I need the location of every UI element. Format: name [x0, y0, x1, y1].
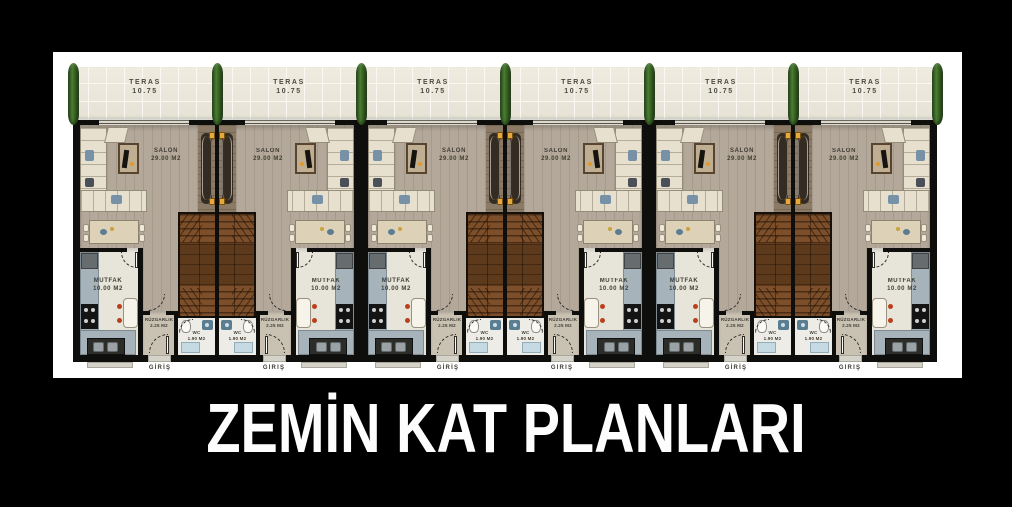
entrance-label: GİRİŞ: [249, 365, 299, 373]
sink-counter: [885, 338, 923, 355]
kitchen-room-name: MUTFAK: [300, 278, 352, 286]
entrance-door-leaf: [265, 336, 268, 354]
floor-plan-sheet: TERAS 10.75: [0, 0, 1012, 507]
sink-counter: [597, 338, 635, 355]
stair-landing: [468, 244, 503, 286]
staircase: [795, 212, 832, 318]
wc-wall: [507, 316, 546, 318]
kitchen-wall: [656, 248, 703, 252]
entrance-label: GİRİŞ: [711, 365, 761, 373]
unit-graphics: TERAS 10.75: [505, 52, 649, 378]
dining-chair: [633, 234, 639, 242]
salon-room-name: SALON: [523, 148, 589, 156]
entrance-label: GİRİŞ: [135, 365, 185, 373]
wc-room-area: 1.90 M2: [219, 336, 256, 342]
wc-wall: [752, 316, 791, 318]
stair-landing: [756, 244, 791, 286]
entrance-door-leaf: [742, 336, 745, 354]
entrance-name: GİRİŞ: [537, 365, 587, 373]
sofa-pillow: [111, 195, 122, 204]
vestibule-room-area: 2.25 M2: [257, 323, 293, 329]
sofa-pillow: [600, 195, 611, 204]
kitchen-room-name: MUTFAK: [588, 278, 640, 286]
dining-table: [665, 220, 715, 244]
wc-wall: [795, 316, 834, 318]
salon-room-area: 29.00 M2: [421, 156, 487, 164]
dining-chair: [427, 234, 433, 242]
vestibule-label: RÜZGARLIK 2.25 M2: [717, 317, 753, 328]
salon-room-area: 29.00 M2: [811, 156, 877, 164]
sink: [669, 342, 680, 352]
dining-chair: [371, 234, 377, 242]
salon-room-name: SALON: [709, 148, 775, 156]
sink: [906, 342, 917, 352]
newel-post: [209, 198, 215, 205]
entrance-name: GİRİŞ: [249, 365, 299, 373]
vestibule-room-name: RÜZGARLIK: [141, 317, 177, 323]
newel-post: [795, 198, 801, 205]
wc-wall: [544, 316, 546, 355]
stove: [912, 304, 929, 329]
dining-chair: [577, 234, 583, 242]
newel-post: [507, 132, 513, 139]
dining-chair: [289, 224, 295, 232]
tv: [698, 150, 705, 169]
vestibule-room-name: RÜZGARLIK: [545, 317, 581, 323]
bottom-wall: [649, 355, 724, 362]
cypress-tree: [644, 63, 655, 125]
fridge: [369, 253, 386, 269]
bottom-wall: [286, 355, 361, 362]
kitchen-chair: [117, 318, 122, 323]
kitchen-chair: [405, 304, 410, 309]
cypress-tree: [500, 63, 511, 125]
wc-wall: [464, 316, 466, 355]
cypress-tree: [212, 63, 223, 125]
sink: [316, 342, 327, 352]
stair-corridor: [198, 125, 215, 212]
sofa-pillow: [312, 195, 323, 204]
kitchen-wall: [368, 248, 415, 252]
bottom-wall: [793, 355, 839, 362]
kitchen-room-name: MUTFAK: [82, 278, 134, 286]
entrance-sill: [839, 355, 862, 362]
sofa-pillow: [661, 178, 670, 187]
vestibule-room-name: RÜZGARLIK: [429, 317, 465, 323]
breakfast-table: [123, 298, 138, 328]
fridge: [657, 253, 674, 269]
entrance-name: GİRİŞ: [423, 365, 473, 373]
sink-counter: [87, 338, 125, 355]
kitchen-chair: [312, 318, 317, 323]
table-decor: [676, 229, 683, 235]
kitchen-chair: [888, 304, 893, 309]
kitchen-chair: [693, 318, 698, 323]
dining-chair: [659, 234, 665, 242]
housing-unit-1: TERAS 10.75: [73, 52, 217, 378]
shower-mat: [522, 342, 541, 353]
vestibule-label: RÜZGARLIK 2.25 M2: [545, 317, 581, 328]
wc-room-area: 1.90 M2: [795, 336, 832, 342]
dining-chair: [289, 234, 295, 242]
plan-paper: TERAS 10.75: [53, 52, 962, 378]
dining-chair: [139, 224, 145, 232]
unit-graphics: TERAS 10.75: [73, 52, 217, 378]
sink: [395, 342, 406, 352]
stair-railing: [490, 136, 500, 200]
sink: [892, 342, 903, 352]
bottom-wall: [747, 355, 793, 362]
dining-chair: [345, 234, 351, 242]
terrace-room-name: TERAS: [505, 79, 649, 88]
stair-landing: [219, 244, 254, 286]
stove: [369, 304, 386, 329]
table-decor: [320, 227, 324, 231]
vestibule-room-name: RÜZGARLIK: [833, 317, 869, 323]
kitchen-room-area: 10.00 M2: [658, 286, 710, 294]
door-leaf: [423, 252, 426, 268]
terrace-room-name: TERAS: [361, 79, 505, 88]
dining-chair: [345, 224, 351, 232]
sofa-corner: [593, 127, 618, 143]
fridge: [624, 253, 641, 269]
entrance-label: GİRİŞ: [537, 365, 587, 373]
staircase: [466, 212, 503, 318]
vestibule-label: RÜZGARLIK 2.25 M2: [429, 317, 465, 328]
salon-label: SALON 29.00 M2: [523, 148, 589, 163]
sink: [618, 342, 629, 352]
outer-wall: [361, 120, 368, 362]
bottom-wall: [361, 355, 436, 362]
dining-chair: [715, 224, 721, 232]
terrace-room-area: 10.75: [793, 88, 937, 97]
newel-post: [219, 132, 225, 139]
table-decor: [100, 229, 107, 235]
fridge: [81, 253, 98, 269]
vestibule-room-area: 2.25 M2: [833, 323, 869, 329]
washbasin: [509, 320, 520, 330]
newel-post: [795, 132, 801, 139]
outer-wall: [930, 120, 937, 362]
kitchen-label: MUTFAK 10.00 M2: [588, 278, 640, 293]
terrace-room-name: TERAS: [217, 79, 361, 88]
dining-table: [377, 220, 427, 244]
staircase: [178, 212, 215, 318]
dining-chair: [865, 224, 871, 232]
vestibule-room-area: 2.25 M2: [429, 323, 465, 329]
kitchen-chair: [693, 304, 698, 309]
shower-mat: [234, 342, 253, 353]
table-decor: [398, 227, 402, 231]
entrance-label: GİRİŞ: [825, 365, 875, 373]
salon-label: SALON 29.00 M2: [709, 148, 775, 163]
winder-treads: [520, 214, 542, 242]
table-decor: [896, 227, 900, 231]
entrance-sill: [551, 355, 574, 362]
vestibule-wall: [431, 311, 438, 315]
salon-label: SALON 29.00 M2: [811, 148, 877, 163]
kitchen-wall: [80, 248, 127, 252]
entrance-sill: [436, 355, 459, 362]
housing-unit-4: TERAS 10.75: [505, 52, 649, 378]
entrance-label: GİRİŞ: [423, 365, 473, 373]
salon-room-name: SALON: [235, 148, 301, 156]
sofa-pillow: [628, 150, 637, 161]
kitchen-chair: [312, 304, 317, 309]
stair-railing: [202, 136, 212, 200]
sofa-pillow: [916, 150, 925, 161]
bottom-wall: [217, 355, 263, 362]
vestibule-label: RÜZGARLIK 2.25 M2: [833, 317, 869, 328]
sofa-pillow: [888, 195, 899, 204]
terrace-room-area: 10.75: [649, 88, 793, 97]
sofa-pillow: [373, 150, 382, 161]
stair-railing: [510, 136, 520, 200]
unit-graphics: TERAS 10.75: [217, 52, 361, 378]
dining-chair: [715, 234, 721, 242]
shower-mat: [757, 342, 776, 353]
tv: [410, 150, 417, 169]
vestibule-room-area: 2.25 M2: [717, 323, 753, 329]
fridge: [912, 253, 929, 269]
terrace-room-area: 10.75: [505, 88, 649, 97]
salon-room-name: SALON: [811, 148, 877, 156]
bottom-wall: [459, 355, 505, 362]
outer-wall: [642, 120, 649, 362]
breakfast-table: [411, 298, 426, 328]
flight-divider: [199, 214, 200, 316]
vestibule-room-area: 2.25 M2: [141, 323, 177, 329]
entrance-name: GİRİŞ: [711, 365, 761, 373]
kitchen-wall: [307, 248, 354, 252]
tv: [305, 150, 312, 169]
staircase: [219, 212, 256, 318]
sink: [683, 342, 694, 352]
dining-chair: [83, 234, 89, 242]
shower-mat: [469, 342, 488, 353]
entrance-name: GİRİŞ: [135, 365, 185, 373]
terrace-room-area: 10.75: [217, 88, 361, 97]
sink-counter: [375, 338, 413, 355]
outer-wall: [73, 120, 80, 362]
vestibule-room-name: RÜZGARLIK: [717, 317, 753, 323]
staircase: [754, 212, 791, 318]
wc-wall: [832, 316, 834, 355]
housing-unit-3: TERAS 10.75: [361, 52, 505, 378]
winder-treads: [232, 288, 254, 316]
wc-room-area: 1.90 M2: [178, 336, 215, 342]
terrace-label: TERAS 10.75: [505, 79, 649, 97]
dining-chair: [659, 224, 665, 232]
washbasin: [490, 320, 501, 330]
winder-treads: [520, 288, 542, 316]
bottom-wall: [862, 355, 937, 362]
sofa-pillow: [399, 195, 410, 204]
salon-label: SALON 29.00 M2: [133, 148, 199, 163]
wc-wall: [256, 316, 258, 355]
dining-chair: [427, 224, 433, 232]
kitchen-wall: [883, 248, 930, 252]
sofa-pillow: [628, 178, 637, 187]
bottom-wall: [171, 355, 217, 362]
salon-room-area: 29.00 M2: [235, 156, 301, 164]
vestibule-wall: [284, 311, 291, 315]
entrance-sill: [724, 355, 747, 362]
door-leaf: [584, 252, 587, 268]
dining-chair: [865, 234, 871, 242]
sofa-corner: [881, 127, 906, 143]
stair-corridor: [774, 125, 791, 212]
bottom-wall: [505, 355, 551, 362]
basement-window-sill: [375, 362, 421, 368]
wc-wall: [176, 316, 178, 355]
vestibule-label: RÜZGARLIK 2.25 M2: [257, 317, 293, 328]
tv: [881, 150, 888, 169]
newel-post: [785, 198, 791, 205]
stair-landing: [180, 244, 215, 286]
kitchen-room-name: MUTFAK: [658, 278, 710, 286]
kitchen-chair: [405, 318, 410, 323]
sink: [93, 342, 104, 352]
housing-unit-2: TERAS 10.75: [217, 52, 361, 378]
dining-chair: [139, 234, 145, 242]
entrance-door-leaf: [166, 336, 169, 354]
newel-post: [209, 132, 215, 139]
table-decor: [388, 229, 395, 235]
flight-divider: [810, 214, 811, 316]
breakfast-table: [872, 298, 887, 328]
stair-landing: [507, 244, 542, 286]
stair-corridor: [507, 125, 524, 212]
entrance-sill: [263, 355, 286, 362]
tv: [122, 150, 129, 169]
kitchen-room-area: 10.00 M2: [876, 286, 928, 294]
dining-chair: [921, 234, 927, 242]
flight-divider: [775, 214, 776, 316]
kitchen-label: MUTFAK 10.00 M2: [82, 278, 134, 293]
dining-table: [89, 220, 139, 244]
vestibule-room-area: 2.25 M2: [545, 323, 581, 329]
washbasin: [778, 320, 789, 330]
table-decor: [903, 229, 910, 235]
terrace-label: TERAS 10.75: [361, 79, 505, 97]
entrance-door-leaf: [841, 336, 844, 354]
sofa-pillow: [661, 150, 670, 161]
sofa-corner: [104, 127, 129, 143]
wc-room-area: 1.90 M2: [466, 336, 503, 342]
winder-treads: [808, 214, 830, 242]
dining-chair: [633, 224, 639, 232]
table-decor: [615, 229, 622, 235]
breakfast-table: [699, 298, 714, 328]
terrace-label: TERAS 10.75: [73, 79, 217, 97]
unit-graphics: TERAS 10.75: [649, 52, 793, 378]
stair-railing: [798, 136, 808, 200]
newel-post: [219, 198, 225, 205]
stove: [624, 304, 641, 329]
kitchen-chair: [600, 304, 605, 309]
housing-unit-6: TERAS 10.75: [793, 52, 937, 378]
kitchen-room-name: MUTFAK: [876, 278, 928, 286]
dining-table: [295, 220, 345, 244]
basement-window-sill: [589, 362, 635, 368]
fridge: [336, 253, 353, 269]
entrance-door-leaf: [553, 336, 556, 354]
entrance-sill: [148, 355, 171, 362]
staircase: [507, 212, 544, 318]
entrance-name: GİRİŞ: [825, 365, 875, 373]
newel-post: [497, 198, 503, 205]
terrace-label: TERAS 10.75: [217, 79, 361, 97]
wc-room-area: 1.90 M2: [754, 336, 791, 342]
stair-corridor: [219, 125, 236, 212]
winder-treads: [808, 288, 830, 316]
door-leaf: [711, 252, 714, 268]
stair-corridor: [486, 125, 503, 212]
outer-wall: [354, 120, 361, 362]
sink-counter: [663, 338, 701, 355]
salon-room-area: 29.00 M2: [523, 156, 589, 164]
vestibule-wall: [719, 311, 726, 315]
basement-window-sill: [87, 362, 133, 368]
kitchen-wall: [595, 248, 642, 252]
cypress-tree: [788, 63, 799, 125]
sofa-pillow: [340, 178, 349, 187]
winder-treads: [232, 214, 254, 242]
sofa-pillow: [85, 150, 94, 161]
sofa-pillow: [373, 178, 382, 187]
stair-landing: [795, 244, 830, 286]
sofa-pillow: [687, 195, 698, 204]
breakfast-table: [296, 298, 311, 328]
terrace-room-name: TERAS: [793, 79, 937, 88]
kitchen-label: MUTFAK 10.00 M2: [300, 278, 352, 293]
table-decor: [686, 227, 690, 231]
dining-table: [583, 220, 633, 244]
kitchen-chair: [888, 318, 893, 323]
stair-corridor: [795, 125, 812, 212]
kitchen-chair: [117, 304, 122, 309]
dining-table: [871, 220, 921, 244]
kitchen-room-area: 10.00 M2: [588, 286, 640, 294]
page-title: ZEMİN KAT PLANLARI: [101, 396, 911, 460]
wc-wall: [752, 316, 754, 355]
entrance-door-leaf: [454, 336, 457, 354]
vestibule-wall: [143, 311, 150, 315]
stair-railing: [778, 136, 788, 200]
sink: [330, 342, 341, 352]
vestibule-wall: [860, 311, 867, 315]
housing-unit-5: TERAS 10.75: [649, 52, 793, 378]
kitchen-label: MUTFAK 10.00 M2: [876, 278, 928, 293]
bottom-wall: [73, 355, 148, 362]
terrace-label: TERAS 10.75: [649, 79, 793, 97]
dining-chair: [577, 224, 583, 232]
vestibule-room-name: RÜZGARLIK: [257, 317, 293, 323]
door-leaf: [872, 252, 875, 268]
sink: [107, 342, 118, 352]
dining-chair: [921, 224, 927, 232]
kitchen-room-area: 10.00 M2: [300, 286, 352, 294]
basement-window-sill: [663, 362, 709, 368]
sink: [604, 342, 615, 352]
vestibule-wall: [572, 311, 579, 315]
washbasin: [221, 320, 232, 330]
washbasin: [797, 320, 808, 330]
sofa-corner: [680, 127, 705, 143]
cypress-tree: [932, 63, 943, 125]
terrace-room-name: TERAS: [649, 79, 793, 88]
